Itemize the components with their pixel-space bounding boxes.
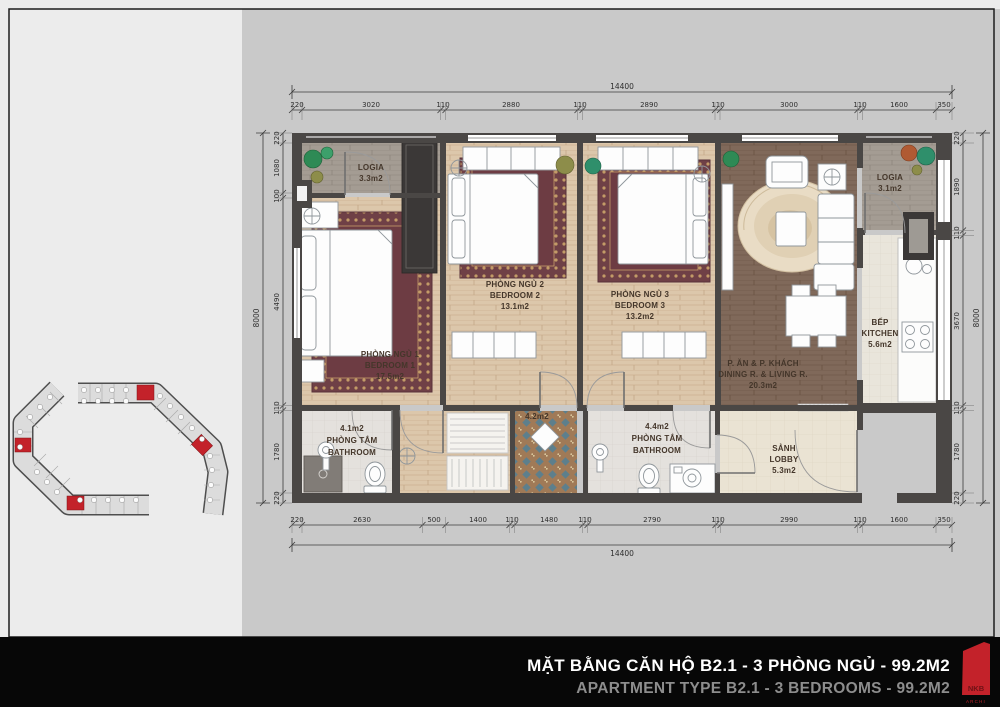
svg-text:350: 350 bbox=[937, 101, 950, 109]
plan-canvas: LOGIA 3.3m2 PHÒNG NGỦ 1 BEDROOM 1 17.5m2… bbox=[0, 0, 1000, 707]
svg-text:100: 100 bbox=[273, 189, 281, 202]
svg-text:PHÒNG TẮM: PHÒNG TẮM bbox=[632, 434, 683, 443]
shower-head-icon bbox=[399, 448, 415, 464]
kitchen-sink-icon bbox=[906, 258, 922, 274]
svg-text:1600: 1600 bbox=[890, 516, 908, 524]
svg-text:2890: 2890 bbox=[640, 101, 658, 109]
svg-text:1890: 1890 bbox=[953, 178, 961, 196]
bed2 bbox=[448, 174, 538, 264]
svg-text:BEDROOM 2: BEDROOM 2 bbox=[490, 291, 541, 300]
svg-text:17.5m2: 17.5m2 bbox=[376, 372, 405, 381]
svg-text:3670: 3670 bbox=[953, 312, 961, 330]
footer-bar: MẶT BẰNG CĂN HỘ B2.1 - 3 PHÒNG NGỦ - 99.… bbox=[0, 637, 1000, 707]
svg-text:4490: 4490 bbox=[273, 293, 281, 311]
room-label-bedroom3: PHÒNG NGỦ 3 bbox=[611, 290, 670, 299]
svg-text:2880: 2880 bbox=[502, 101, 520, 109]
crosshair-icon bbox=[694, 166, 710, 182]
room-label-lobby: SẢNH bbox=[772, 444, 795, 453]
logo-subtext: ARCHI bbox=[966, 699, 986, 704]
room-label-bedroom2: PHÒNG NGỦ 2 bbox=[486, 280, 545, 289]
room-label-hall: 4.2m2 bbox=[525, 412, 549, 421]
bed1 bbox=[296, 230, 392, 356]
svg-text:BATHROOM: BATHROOM bbox=[633, 446, 681, 455]
dim-bottom-total: 14400 bbox=[610, 549, 634, 558]
svg-text:110: 110 bbox=[711, 101, 724, 109]
logo-text: NKB bbox=[968, 684, 985, 693]
svg-text:3020: 3020 bbox=[362, 101, 380, 109]
svg-text:1080: 1080 bbox=[273, 159, 281, 177]
room-label-bathroom2: 4.4m2 bbox=[645, 422, 669, 431]
svg-text:2990: 2990 bbox=[780, 516, 798, 524]
closet-shelves bbox=[447, 413, 508, 490]
svg-text:110: 110 bbox=[853, 516, 866, 524]
svg-text:1780: 1780 bbox=[273, 443, 281, 461]
room-label-kitchen: BẾP bbox=[871, 317, 889, 327]
nkb-logo: NKB ARCHI bbox=[962, 642, 990, 704]
cabinet-bedroom2 bbox=[463, 147, 560, 170]
svg-text:1480: 1480 bbox=[540, 516, 558, 524]
svg-text:DINING R. & LIVING R.: DINING R. & LIVING R. bbox=[718, 370, 808, 379]
svg-text:3.1m2: 3.1m2 bbox=[878, 184, 902, 193]
svg-text:3000: 3000 bbox=[780, 101, 798, 109]
toilet-icon-bathroom1 bbox=[364, 462, 386, 493]
toilet-icon-bathroom2 bbox=[638, 464, 660, 495]
dim-top-total: 14400 bbox=[610, 82, 634, 91]
svg-text:110: 110 bbox=[573, 101, 586, 109]
entry-recess bbox=[862, 413, 936, 493]
wardrobe-bedroom1 bbox=[402, 140, 437, 273]
svg-text:3.3m2: 3.3m2 bbox=[359, 174, 383, 183]
floor-plan: LOGIA 3.3m2 PHÒNG NGỦ 1 BEDROOM 1 17.5m2… bbox=[252, 82, 990, 558]
svg-text:220: 220 bbox=[273, 131, 281, 144]
svg-text:110: 110 bbox=[505, 516, 518, 524]
svg-text:2630: 2630 bbox=[353, 516, 371, 524]
footer-title-vi: MẶT BẰNG CĂN HỘ B2.1 - 3 PHÒNG NGỦ - 99.… bbox=[527, 656, 950, 675]
plant-icon bbox=[723, 151, 739, 167]
svg-text:220: 220 bbox=[273, 491, 281, 504]
dim-right-total: 8000 bbox=[972, 308, 981, 327]
svg-text:2790: 2790 bbox=[643, 516, 661, 524]
svg-text:LOBBY: LOBBY bbox=[770, 455, 799, 464]
svg-text:220: 220 bbox=[290, 516, 303, 524]
svg-text:1400: 1400 bbox=[469, 516, 487, 524]
svg-text:110: 110 bbox=[953, 226, 961, 239]
crosshair-icon bbox=[824, 169, 840, 185]
kitchen-counter bbox=[898, 238, 936, 402]
washer-icon bbox=[670, 464, 715, 493]
svg-text:5.3m2: 5.3m2 bbox=[772, 466, 796, 475]
svg-text:1600: 1600 bbox=[890, 101, 908, 109]
svg-text:110: 110 bbox=[273, 401, 281, 414]
svg-text:BATHROOM: BATHROOM bbox=[328, 448, 376, 457]
svg-text:110: 110 bbox=[578, 516, 591, 524]
svg-text:1780: 1780 bbox=[953, 443, 961, 461]
svg-text:5.6m2: 5.6m2 bbox=[868, 340, 892, 349]
svg-text:500: 500 bbox=[427, 516, 440, 524]
room-label-bathroom1: 4.1m2 bbox=[340, 424, 364, 433]
svg-text:220: 220 bbox=[953, 491, 961, 504]
sofa bbox=[814, 194, 854, 290]
crosshair-icon bbox=[451, 160, 467, 176]
svg-text:20.3m2: 20.3m2 bbox=[749, 381, 778, 390]
svg-text:13.2m2: 13.2m2 bbox=[626, 312, 655, 321]
svg-text:BEDROOM 3: BEDROOM 3 bbox=[615, 301, 666, 310]
crosshair-icon bbox=[304, 208, 320, 224]
tv-cabinet bbox=[722, 184, 733, 290]
svg-text:KITCHEN: KITCHEN bbox=[862, 329, 899, 338]
svg-text:110: 110 bbox=[711, 516, 724, 524]
svg-text:350: 350 bbox=[937, 516, 950, 524]
svg-text:PHÒNG TẮM: PHÒNG TẮM bbox=[327, 436, 378, 445]
room-label-logia-right: LOGIA bbox=[877, 173, 903, 182]
room-label-living: P. ĂN & P. KHÁCH bbox=[727, 359, 798, 368]
dim-left-total: 8000 bbox=[252, 308, 261, 327]
shaft-block bbox=[903, 212, 934, 260]
svg-text:220: 220 bbox=[953, 131, 961, 144]
drawing-sheet: LOGIA 3.3m2 PHÒNG NGỦ 1 BEDROOM 1 17.5m2… bbox=[0, 0, 1000, 707]
svg-text:220: 220 bbox=[290, 101, 303, 109]
footer-title-en: APARTMENT TYPE B2.1 - 3 BEDROOMS - 99.2M… bbox=[576, 680, 950, 697]
svg-text:BEDROOM 1: BEDROOM 1 bbox=[365, 361, 416, 370]
room-label-bedroom1: PHÒNG NGỦ 1 bbox=[361, 350, 420, 359]
bed3 bbox=[618, 174, 708, 264]
svg-text:110: 110 bbox=[436, 101, 449, 109]
svg-text:13.1m2: 13.1m2 bbox=[501, 302, 530, 311]
svg-text:110: 110 bbox=[853, 101, 866, 109]
svg-text:110: 110 bbox=[953, 401, 961, 414]
coffee-table bbox=[776, 212, 806, 246]
room-label-logia-left: LOGIA bbox=[358, 163, 384, 172]
